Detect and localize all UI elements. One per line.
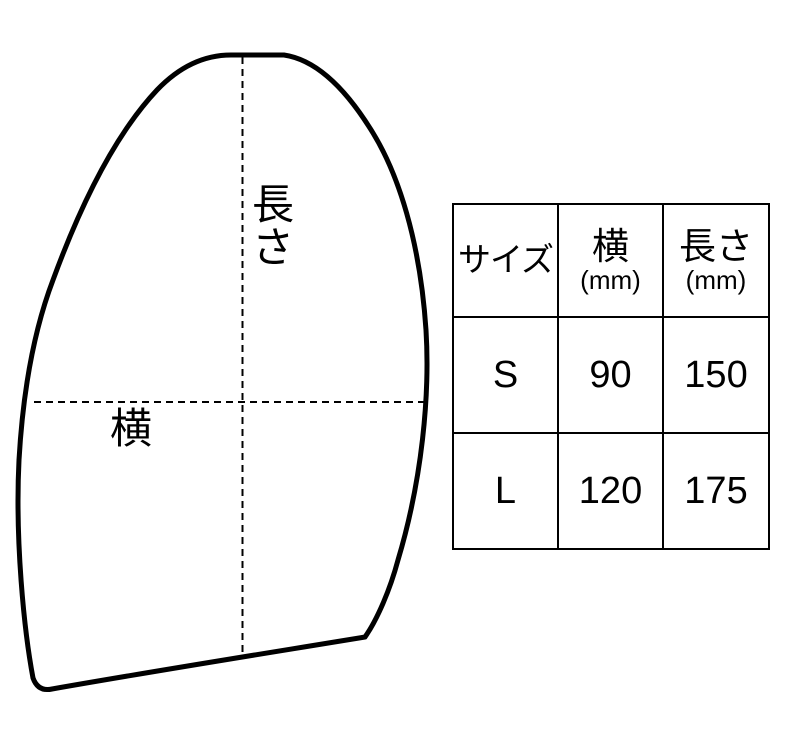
length-column-title: 長さ — [664, 227, 768, 267]
length-cell-s: 150 — [663, 317, 769, 433]
width-column-unit: (mm) — [559, 267, 662, 294]
size-cell-l: L — [453, 433, 558, 549]
size-value: S — [493, 354, 518, 396]
size-table-header-length: 長さ (mm) — [663, 204, 769, 317]
length-column-unit: (mm) — [664, 267, 768, 294]
size-table: サイズ 横 (mm) 長さ (mm) S 90 — [452, 203, 770, 550]
product-size-diagram: 長さ 横 サイズ 横 (mm) 長さ (mm) S — [0, 0, 794, 751]
width-value: 120 — [579, 470, 642, 512]
length-label: 長さ — [250, 184, 296, 270]
size-cell-s: S — [453, 317, 558, 433]
size-table-header-width: 横 (mm) — [558, 204, 663, 317]
width-value: 90 — [589, 354, 631, 396]
size-column-title: サイズ — [454, 243, 557, 278]
width-label: 横 — [110, 408, 152, 451]
width-column-title: 横 — [559, 227, 662, 267]
half-sole-outline — [18, 55, 427, 690]
size-table-header-row: サイズ 横 (mm) 長さ (mm) — [453, 204, 769, 317]
length-value: 150 — [684, 354, 747, 396]
width-cell-l: 120 — [558, 433, 663, 549]
table-row-l: L 120 175 — [453, 433, 769, 549]
size-value: L — [495, 470, 516, 512]
length-cell-l: 175 — [663, 433, 769, 549]
table-row-s: S 90 150 — [453, 317, 769, 433]
size-table-header-size: サイズ — [453, 204, 558, 317]
width-cell-s: 90 — [558, 317, 663, 433]
length-value: 175 — [684, 470, 747, 512]
